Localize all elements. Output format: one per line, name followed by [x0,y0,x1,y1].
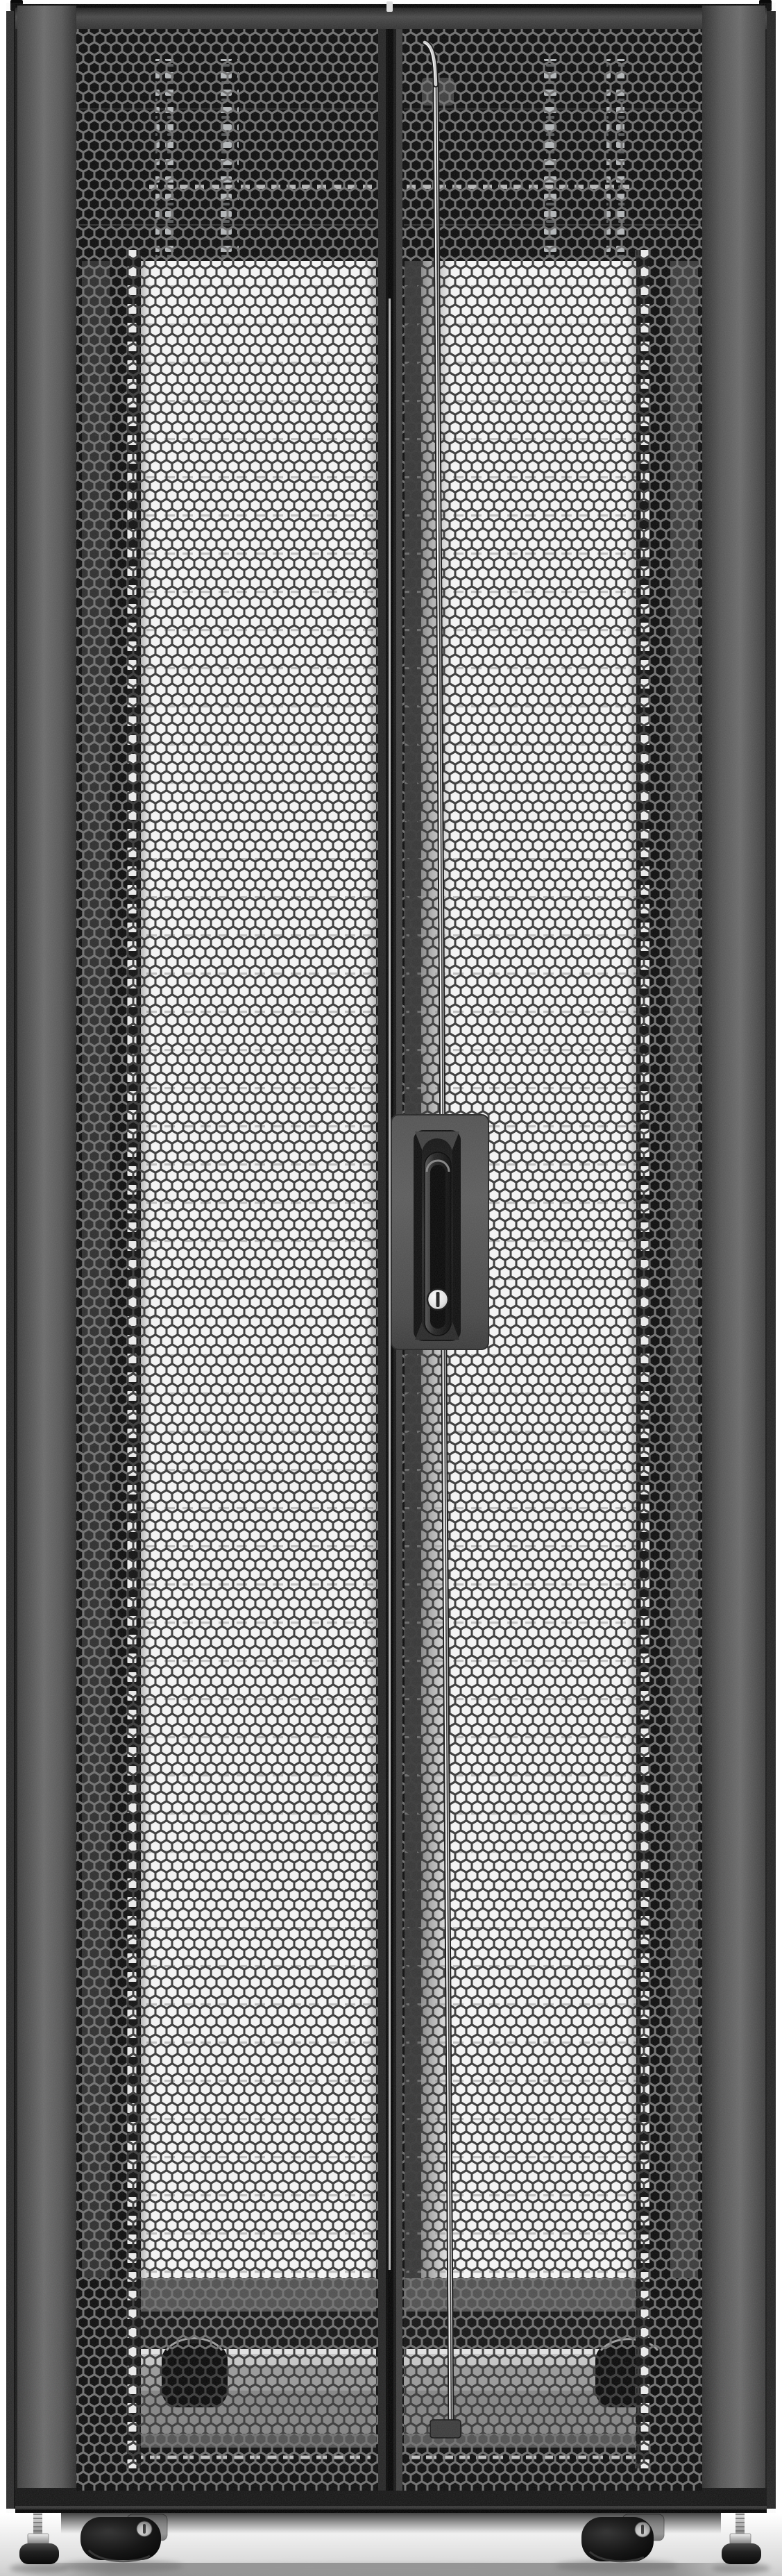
foot-hex-nut [28,2534,49,2545]
foot-hex-nut [730,2534,751,2545]
foot-base [19,2543,59,2564]
server-rack-photo [0,0,782,2576]
foot-shadow-left [10,2564,68,2573]
foot-base [722,2543,761,2564]
product-image [0,0,782,2576]
under-rack-shadow [61,2510,721,2534]
photo-grain-overlay [6,3,776,2513]
foot-shadow-right [712,2564,770,2573]
